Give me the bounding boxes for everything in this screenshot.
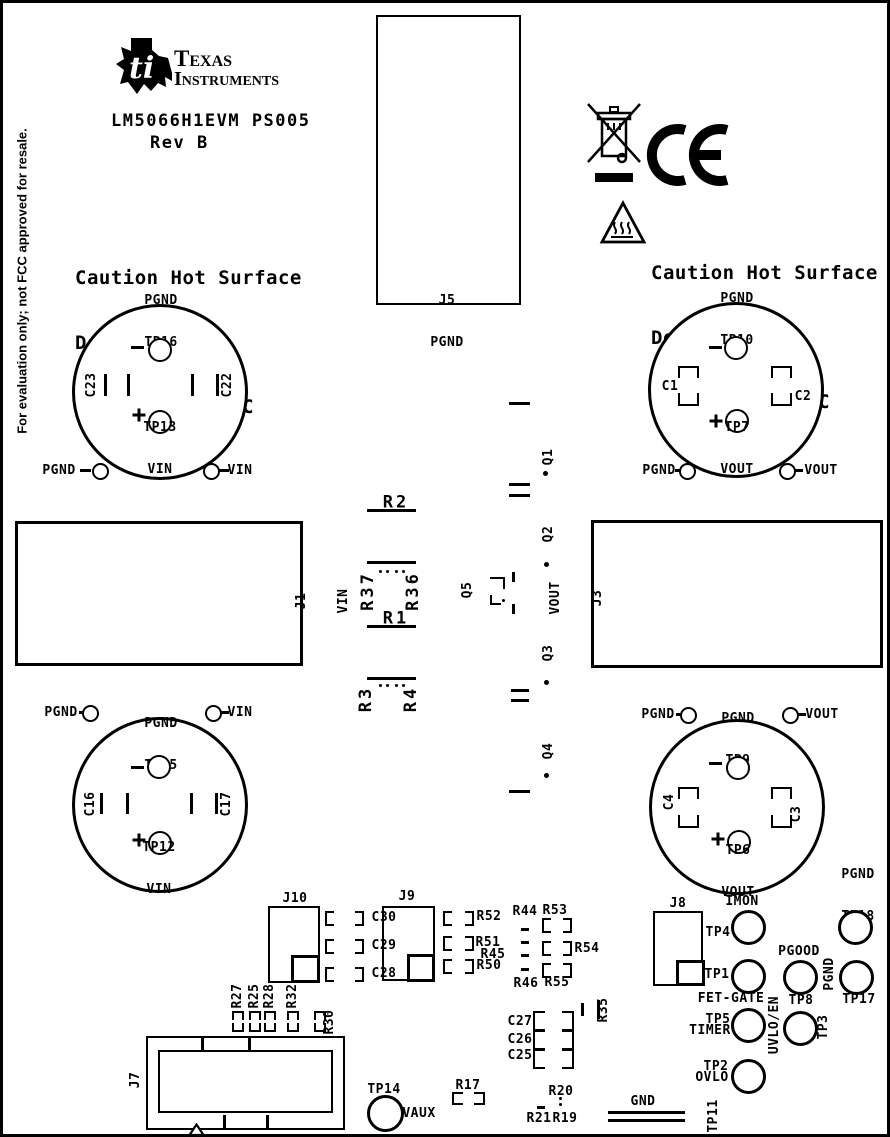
c26-pad <box>562 1030 574 1050</box>
pgnd-pad <box>679 463 696 480</box>
tp4-pad <box>731 910 766 945</box>
c25-label: C25 <box>508 1049 533 1063</box>
pad-dash <box>521 968 529 971</box>
c4-pad <box>678 815 699 828</box>
r55-label: R55 <box>545 976 570 990</box>
r21-label: R21 <box>527 1112 552 1126</box>
c29-pad <box>325 939 334 954</box>
r3-r4-label: R3 R4 <box>329 673 449 726</box>
silk-dot <box>502 599 505 602</box>
r27-pads <box>232 1023 244 1032</box>
pad-dash <box>521 928 529 931</box>
shunt-line <box>367 509 416 512</box>
pad-dash <box>521 954 529 957</box>
tp17-net-label: PGND <box>823 957 837 990</box>
pad-dash <box>537 1106 545 1109</box>
j8-pin1-pad <box>676 960 705 986</box>
tp18-pad <box>838 910 873 945</box>
j7-body <box>158 1050 333 1113</box>
tp7-label: TP7 VOUT <box>720 393 753 505</box>
tp12-label: TP12 VIN <box>142 813 175 925</box>
ovlo-label: OVLO <box>695 1071 728 1085</box>
fet-gate-label: FET-GATE <box>698 992 765 1006</box>
tp14-pad <box>367 1095 404 1132</box>
silk-dot <box>559 1103 562 1106</box>
c16-label: C16 <box>84 792 98 817</box>
pad-tick <box>581 1003 584 1016</box>
r52-pad <box>465 911 474 926</box>
c28-label: C28 <box>372 967 397 981</box>
gnd-label: GND <box>631 1095 656 1109</box>
r52-pad <box>443 911 452 926</box>
cap-tick <box>190 793 193 814</box>
c25-pad <box>562 1049 574 1069</box>
c28-pad <box>325 967 334 982</box>
q5-pad <box>490 577 505 589</box>
j7-key <box>266 1115 269 1129</box>
pad-dash <box>509 483 530 486</box>
c27-pad <box>562 1011 574 1031</box>
r17-pad <box>452 1092 463 1105</box>
r35-line <box>597 1000 600 1019</box>
j7-key <box>223 1115 226 1129</box>
q1-label: Q1 <box>542 449 556 466</box>
cap-tick <box>191 374 194 396</box>
c25-pad <box>533 1049 545 1069</box>
c2-pad <box>771 393 792 406</box>
c17-label: C17 <box>220 792 234 817</box>
pin-dot <box>544 680 549 685</box>
tp17-pad <box>839 960 874 995</box>
pad-tick <box>512 604 515 614</box>
board-title: LM5066H1EVM PS005 <box>111 111 311 132</box>
gnd-line <box>608 1119 685 1122</box>
tp3-pad <box>783 1011 818 1046</box>
r53-pad <box>542 918 551 933</box>
c27-label: C27 <box>508 1015 533 1029</box>
q5-label: Q5 <box>461 582 475 599</box>
r50-label: R50 <box>477 959 502 973</box>
j10-pin1-pad <box>291 955 320 983</box>
weee-crossed-bin-icon <box>587 99 641 189</box>
svg-text:ti: ti <box>129 51 154 86</box>
vout-pad-label: VOUT <box>805 708 838 722</box>
tp3-label: TP3 <box>817 1015 831 1040</box>
vaux-label: VAUX <box>402 1107 435 1121</box>
uvlo-en-label: UVLO/EN <box>768 996 782 1054</box>
brand-line1: Texas <box>174 47 232 70</box>
r32-label: R32 <box>286 984 300 1009</box>
pad-dash <box>521 941 529 944</box>
q3-label: Q3 <box>542 645 556 662</box>
cap-tick <box>215 793 218 814</box>
c26-label: C26 <box>508 1033 533 1047</box>
c30-pad <box>355 911 364 926</box>
tp16-pad <box>148 338 172 362</box>
c26-pad <box>533 1030 545 1050</box>
j7-label: J7 <box>129 1072 143 1089</box>
r25-label: R25 <box>248 984 262 1009</box>
r32-pads <box>287 1023 299 1032</box>
r25-pads <box>249 1011 261 1020</box>
lead-line <box>795 469 803 472</box>
r50-pad <box>465 959 474 974</box>
c30-label: C30 <box>372 911 397 925</box>
j8-label: J8 <box>670 897 687 911</box>
tp5-pad <box>731 1008 766 1043</box>
j7-key <box>248 1038 251 1050</box>
tp9-pad <box>726 756 750 780</box>
tp15-label: PGND TP15 <box>144 689 177 801</box>
r30-pads <box>314 1023 326 1032</box>
pgnd-pad-label: PGND <box>42 464 75 478</box>
j5-label: J5 PGND <box>430 266 463 378</box>
imon-label: IMON <box>725 895 758 909</box>
vin-pad-label: VIN <box>228 464 253 478</box>
c1-pad <box>678 366 699 378</box>
tp17-label: TP17 <box>842 993 875 1007</box>
c30-pad <box>325 911 334 926</box>
vout-pad <box>782 707 799 724</box>
j5-outline <box>376 15 521 305</box>
j9-pin1-pad <box>407 954 435 982</box>
pgnd-pad <box>82 705 99 722</box>
board-revision: Rev B <box>150 133 209 154</box>
r25-pads <box>249 1023 261 1032</box>
r53-label: R53 <box>543 904 568 918</box>
c4-label: C4 <box>663 794 677 811</box>
tp2-pad <box>731 1059 766 1094</box>
c2-pad <box>771 366 792 378</box>
pcb-silkscreen: For evaluation only; not FCC approved fo… <box>0 0 890 1137</box>
c29-pad <box>355 939 364 954</box>
j3-label: VOUT J3 <box>521 581 633 614</box>
pgnd-pad <box>680 707 697 724</box>
gnd-line <box>608 1111 685 1114</box>
q2-label: Q2 <box>542 526 556 543</box>
pad-tick <box>512 572 515 582</box>
hot-surface-icon <box>599 200 647 246</box>
c22-label: C22 <box>221 373 235 398</box>
minus-mark <box>709 346 722 349</box>
j10-label: J10 <box>283 892 308 906</box>
c1-pad <box>678 393 699 406</box>
tp4-label: TP4 <box>706 926 731 940</box>
r28-pads <box>264 1023 276 1032</box>
cap-tick <box>126 793 129 814</box>
r17-label: R17 <box>456 1079 481 1093</box>
vout-pad <box>779 463 796 480</box>
cap-tick <box>216 374 219 396</box>
pad-dash <box>509 790 530 793</box>
vin-pad <box>205 705 222 722</box>
tp1-label: TP1 <box>705 968 730 982</box>
vout-pad-label: VOUT <box>804 464 837 478</box>
r28-pads <box>264 1011 276 1020</box>
c27-pad <box>533 1011 545 1031</box>
pgnd-pad-label: PGND <box>641 708 674 722</box>
pgood-label: PGOOD <box>778 945 820 959</box>
pin-dot <box>544 562 549 567</box>
shunt-line <box>367 561 416 564</box>
c3-label: C3 <box>790 806 804 823</box>
cap-tick <box>127 374 130 396</box>
q5-pad <box>490 595 501 605</box>
r19-label: R19 <box>553 1112 578 1126</box>
r54-pad <box>542 941 551 956</box>
pgnd-pad-label: PGND <box>44 706 77 720</box>
tp10-pad <box>724 336 748 360</box>
r46-label: R46 <box>514 977 539 991</box>
c3-pad <box>771 787 792 799</box>
c28-pad <box>355 967 364 982</box>
pin-dot <box>544 773 549 778</box>
r32-pads <box>287 1011 299 1020</box>
lead-line <box>80 469 91 472</box>
c4-pad <box>678 787 699 799</box>
r54-pad <box>563 941 572 956</box>
r27-pads <box>232 1011 244 1020</box>
evaluation-note: For evaluation only; not FCC approved fo… <box>15 128 30 434</box>
pin1-triangle-icon <box>188 1123 205 1137</box>
shunt-line <box>367 625 416 628</box>
minus-mark <box>131 346 144 349</box>
timer-label: TIMER <box>689 1024 731 1038</box>
tp15-pad <box>147 755 171 779</box>
c2-label: C2 <box>795 390 812 404</box>
c1-label: C1 <box>662 380 679 394</box>
texas-instruments-logo-icon: ti <box>115 37 173 95</box>
r54-label: R54 <box>575 942 600 956</box>
j3-outline <box>591 520 883 668</box>
pad-dash <box>509 402 530 405</box>
tp8-pad <box>783 960 818 995</box>
pin-dot <box>543 471 548 476</box>
pad-dash <box>511 699 529 702</box>
tp1-pad <box>731 959 766 994</box>
tp13-label: TP13 VIN <box>143 393 176 505</box>
vin-pad <box>203 463 220 480</box>
silk-dot <box>559 1097 562 1100</box>
r51-pad <box>443 936 452 951</box>
pgnd-pad <box>92 463 109 480</box>
pgnd-pad-label: PGND <box>642 464 675 478</box>
tp8-label: TP8 <box>789 994 814 1008</box>
brand-line2: Instruments <box>174 69 279 89</box>
tp11-label: TP11 <box>707 1099 721 1132</box>
r27-label: R27 <box>231 984 245 1009</box>
r52-label: R52 <box>477 910 502 924</box>
c23-label: C23 <box>85 373 99 398</box>
minus-mark <box>131 766 144 769</box>
vin-pad-label: VIN <box>228 706 253 720</box>
ce-mark-icon <box>641 119 729 191</box>
r28-label: R28 <box>263 984 277 1009</box>
minus-mark <box>709 762 722 765</box>
j9-label: J9 <box>399 890 416 904</box>
c29-label: C29 <box>372 939 397 953</box>
r50-pad <box>443 959 452 974</box>
cap-tick <box>100 793 103 814</box>
r17-pad <box>474 1092 485 1105</box>
r44-label: R44 <box>513 905 538 919</box>
j1-outline <box>15 521 303 666</box>
cap-tick <box>104 374 107 396</box>
r30-pads <box>314 1011 326 1020</box>
pad-dash <box>511 689 529 692</box>
pad-dash <box>509 494 530 497</box>
q4-label: Q4 <box>542 743 556 760</box>
r53-pad <box>563 918 572 933</box>
j7-key <box>201 1038 204 1050</box>
r51-pad <box>465 936 474 951</box>
